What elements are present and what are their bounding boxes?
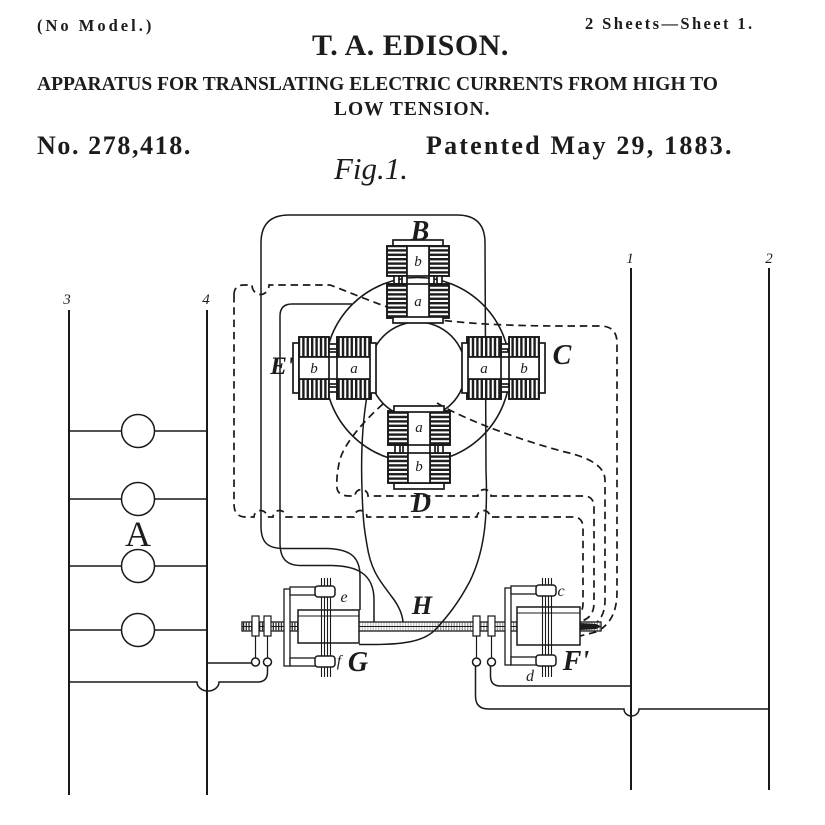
svg-text:C: C <box>553 340 572 371</box>
svg-text:2: 2 <box>765 251 773 267</box>
svg-text:b: b <box>415 459 423 475</box>
svg-text:4: 4 <box>202 292 210 308</box>
svg-text:a: a <box>415 420 423 436</box>
svg-text:e: e <box>340 589 347 606</box>
svg-text:B: B <box>410 216 430 247</box>
svg-text:b: b <box>310 361 318 377</box>
svg-text:F': F' <box>562 646 590 677</box>
svg-text:f: f <box>337 653 344 670</box>
svg-text:3: 3 <box>62 292 71 308</box>
svg-text:1: 1 <box>626 251 634 267</box>
svg-text:a: a <box>350 361 358 377</box>
svg-text:E': E' <box>269 353 294 380</box>
svg-text:D: D <box>410 488 431 519</box>
svg-text:b: b <box>414 254 422 270</box>
svg-text:A: A <box>125 514 151 554</box>
svg-text:a: a <box>414 294 422 310</box>
svg-text:b: b <box>520 361 528 377</box>
svg-text:H: H <box>411 591 433 620</box>
svg-text:c: c <box>557 583 564 600</box>
svg-text:G: G <box>348 647 368 678</box>
svg-text:d: d <box>526 668 535 685</box>
svg-text:a: a <box>480 361 488 377</box>
